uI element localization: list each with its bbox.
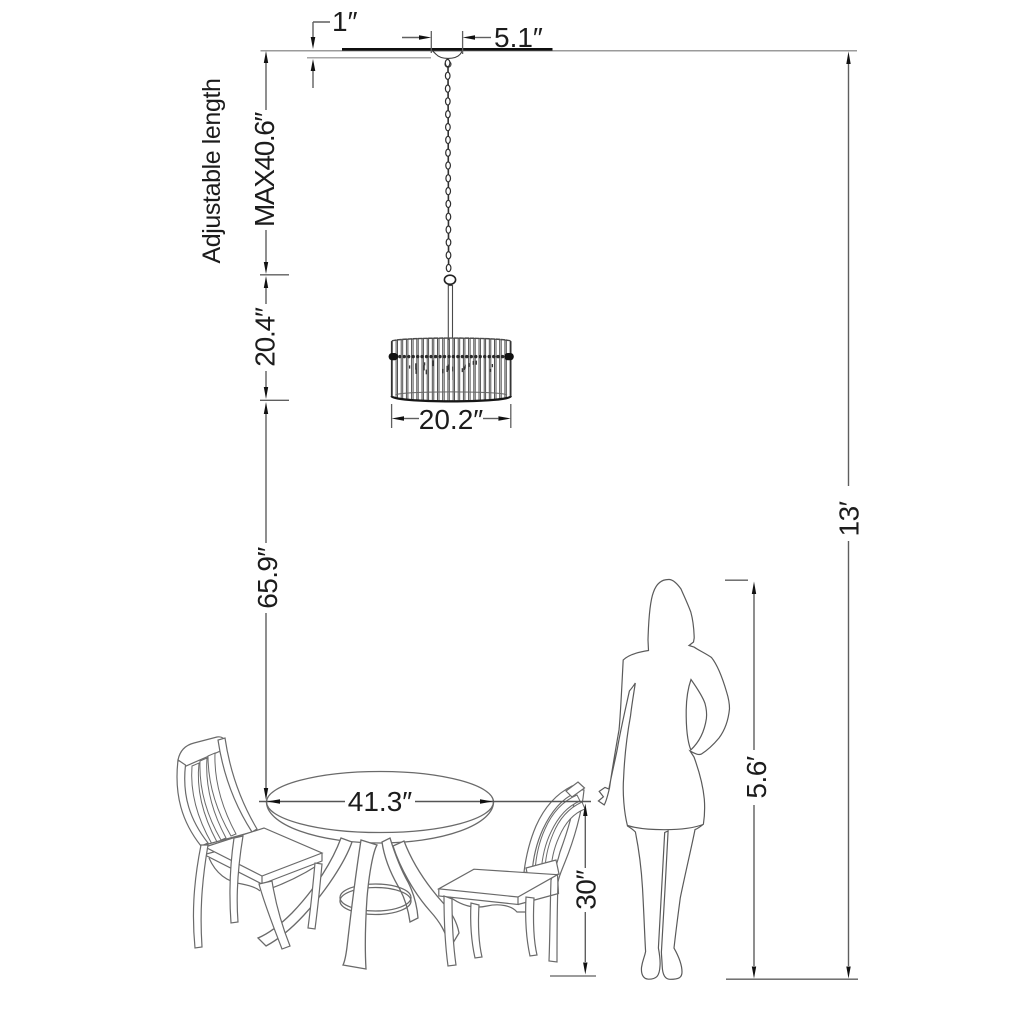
svg-text:13′: 13′ (834, 501, 865, 536)
svg-text:65.9″: 65.9″ (252, 547, 283, 609)
svg-text:20.2″: 20.2″ (419, 404, 483, 435)
svg-text:1″: 1″ (332, 6, 358, 37)
svg-text:41.3″: 41.3″ (348, 786, 412, 817)
svg-text:20.4″: 20.4″ (250, 307, 281, 367)
svg-text:5.6′: 5.6′ (741, 756, 772, 798)
svg-text:5.1″: 5.1″ (494, 22, 543, 53)
svg-text:30″: 30″ (571, 870, 602, 910)
svg-text:Adjustable length: Adjustable length (198, 78, 226, 263)
svg-text:MAX40.6″: MAX40.6″ (249, 112, 280, 227)
